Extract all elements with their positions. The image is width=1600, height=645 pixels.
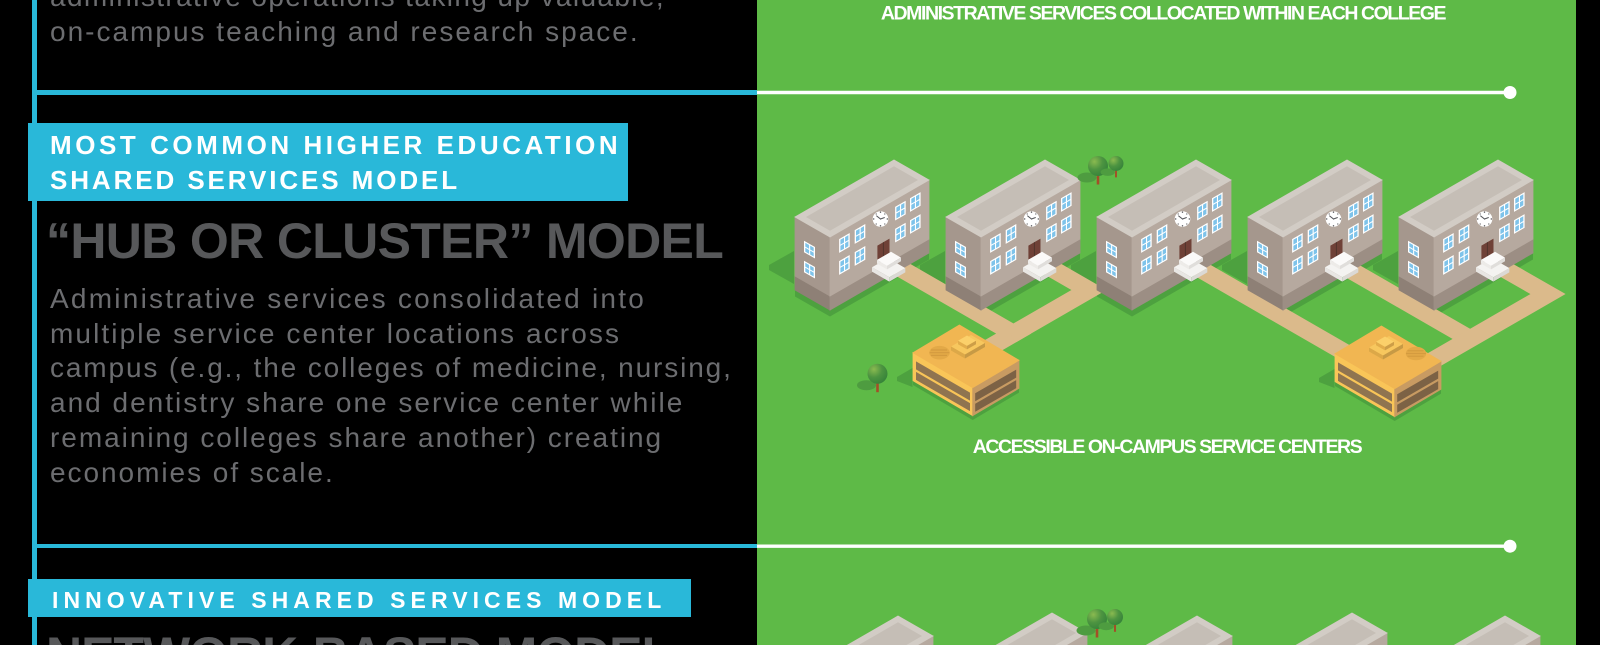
- svg-text:ACCESSIBLE ON-CAMPUS SERVICE C: ACCESSIBLE ON-CAMPUS SERVICE CENTERS: [973, 436, 1363, 458]
- svg-text:ADMINISTRATIVE SERVICES COLLOC: ADMINISTRATIVE SERVICES COLLOCATED WITHI…: [881, 3, 1447, 25]
